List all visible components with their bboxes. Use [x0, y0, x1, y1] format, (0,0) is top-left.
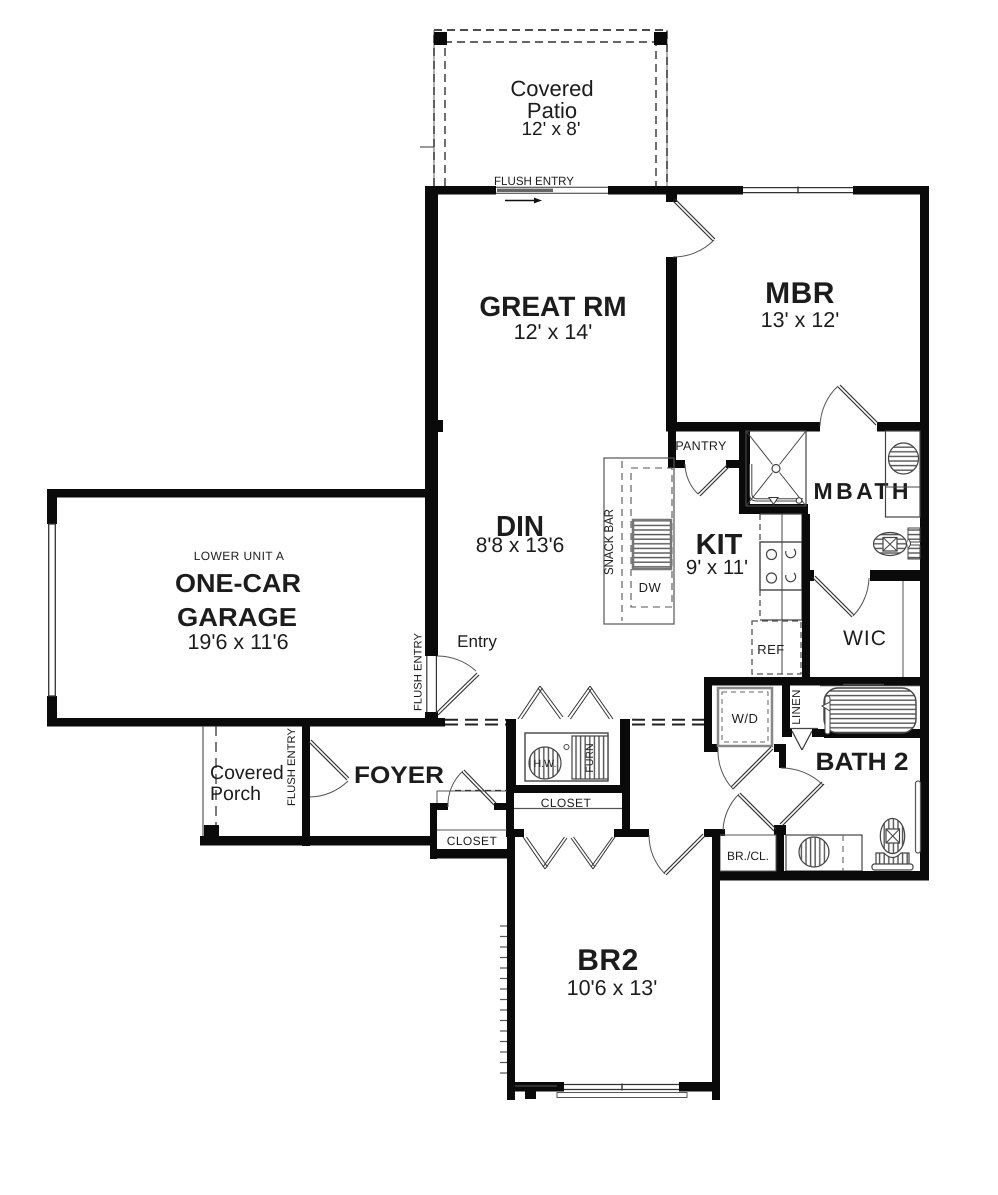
- svg-text:H.W.: H.W.: [534, 758, 557, 770]
- svg-text:Covered: Covered: [210, 762, 284, 784]
- svg-text:LINEN: LINEN: [791, 689, 803, 724]
- svg-text:MBR: MBR: [765, 277, 835, 310]
- svg-text:SNACK BAR: SNACK BAR: [602, 509, 616, 575]
- svg-text:CLOSET: CLOSET: [447, 834, 498, 848]
- svg-text:12' x 8': 12' x 8': [521, 119, 580, 140]
- svg-text:12' x 14': 12' x 14': [514, 320, 593, 344]
- svg-text:DW: DW: [639, 580, 662, 595]
- svg-text:9' x 11': 9' x 11': [686, 556, 748, 579]
- svg-text:LOWER UNIT A: LOWER UNIT A: [194, 549, 285, 563]
- svg-text:PANTRY: PANTRY: [675, 439, 727, 453]
- svg-text:FLUSH ENTRY: FLUSH ENTRY: [413, 632, 425, 711]
- svg-text:10'6 x 13': 10'6 x 13': [567, 976, 658, 1000]
- svg-text:FLUSH ENTRY: FLUSH ENTRY: [494, 174, 574, 188]
- svg-text:Entry: Entry: [457, 632, 497, 651]
- svg-text:FURN: FURN: [584, 743, 596, 772]
- svg-text:GARAGE: GARAGE: [177, 602, 297, 632]
- svg-text:W/D: W/D: [732, 711, 759, 726]
- svg-text:CLOSET: CLOSET: [541, 796, 592, 810]
- svg-text:BATH 2: BATH 2: [816, 748, 909, 776]
- svg-text:REF: REF: [757, 642, 785, 657]
- svg-text:13' x 12': 13' x 12': [761, 308, 840, 332]
- svg-text:GREAT RM: GREAT RM: [479, 291, 626, 322]
- svg-text:ONE-CAR: ONE-CAR: [175, 568, 301, 598]
- svg-text:19'6 x 11'6: 19'6 x 11'6: [187, 630, 288, 654]
- svg-text:8'8 x 13'6: 8'8 x 13'6: [476, 534, 565, 557]
- svg-text:MBATH: MBATH: [814, 478, 909, 504]
- svg-text:BR./CL.: BR./CL.: [727, 849, 769, 863]
- svg-text:BR2: BR2: [577, 944, 639, 977]
- svg-text:FLUSH ENTRY: FLUSH ENTRY: [286, 727, 298, 806]
- svg-text:FOYER: FOYER: [354, 762, 444, 789]
- svg-text:Porch: Porch: [210, 783, 261, 805]
- svg-text:WIC: WIC: [843, 627, 887, 650]
